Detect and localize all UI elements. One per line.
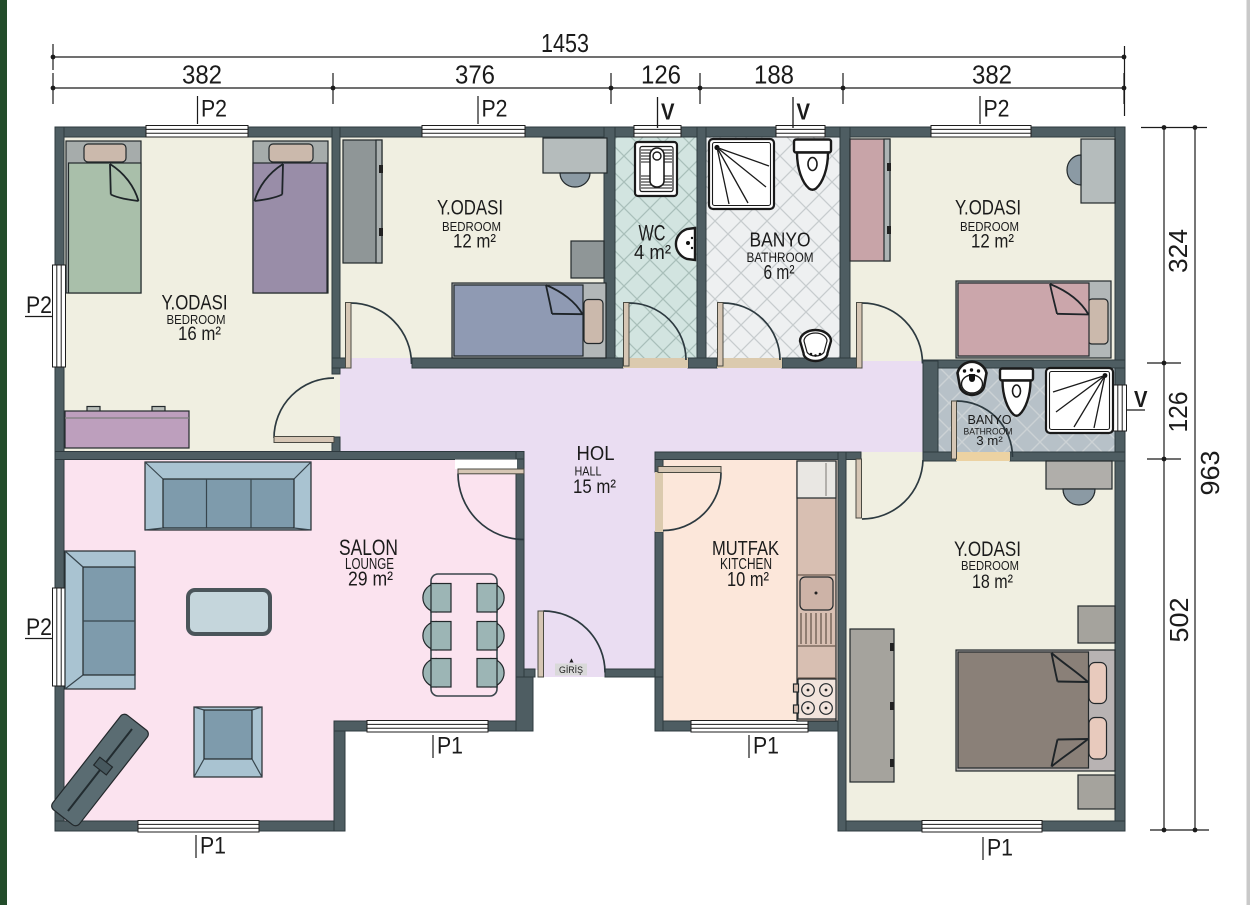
svg-text:P2: P2 — [26, 292, 52, 319]
svg-text:P2: P2 — [482, 96, 508, 123]
svg-text:12 m²: 12 m² — [453, 231, 496, 253]
svg-text:16 m²: 16 m² — [178, 323, 221, 345]
svg-text:6 m²: 6 m² — [764, 262, 795, 284]
svg-text:376: 376 — [455, 60, 495, 90]
svg-text:P1: P1 — [987, 835, 1013, 862]
svg-text:GİRİŞ: GİRİŞ — [559, 665, 583, 675]
svg-text:BANYO: BANYO — [750, 229, 811, 252]
svg-text:10 m²: 10 m² — [727, 569, 769, 591]
svg-text:126: 126 — [1163, 392, 1193, 433]
svg-text:P1: P1 — [200, 833, 226, 860]
svg-text:▲: ▲ — [568, 658, 575, 665]
svg-text:HOL: HOL — [577, 443, 615, 465]
svg-text:BANYO: BANYO — [968, 413, 1012, 427]
svg-text:188: 188 — [754, 60, 794, 90]
svg-text:963: 963 — [1195, 451, 1225, 496]
svg-text:382: 382 — [182, 60, 222, 90]
svg-text:29 m²: 29 m² — [348, 569, 393, 591]
svg-text:15 m²: 15 m² — [573, 476, 616, 498]
svg-text:V: V — [797, 99, 811, 125]
svg-text:382: 382 — [972, 60, 1012, 90]
svg-text:V: V — [1134, 386, 1148, 412]
svg-text:P1: P1 — [753, 733, 779, 760]
svg-text:P2: P2 — [26, 614, 52, 641]
svg-text:324: 324 — [1163, 229, 1193, 273]
svg-text:3 m²: 3 m² — [976, 434, 1003, 448]
svg-text:V: V — [661, 99, 675, 125]
svg-text:12 m²: 12 m² — [971, 231, 1014, 253]
svg-text:126: 126 — [641, 60, 681, 90]
svg-text:18 m²: 18 m² — [972, 571, 1013, 593]
svg-text:Y.ODASI: Y.ODASI — [437, 197, 503, 220]
svg-text:P2: P2 — [201, 96, 227, 123]
svg-text:Y.ODASI: Y.ODASI — [955, 197, 1021, 220]
svg-text:502: 502 — [1164, 598, 1194, 643]
svg-text:P1: P1 — [437, 733, 463, 760]
svg-text:1453: 1453 — [541, 28, 589, 58]
svg-text:P2: P2 — [984, 96, 1010, 123]
svg-text:4 m²: 4 m² — [634, 242, 671, 264]
